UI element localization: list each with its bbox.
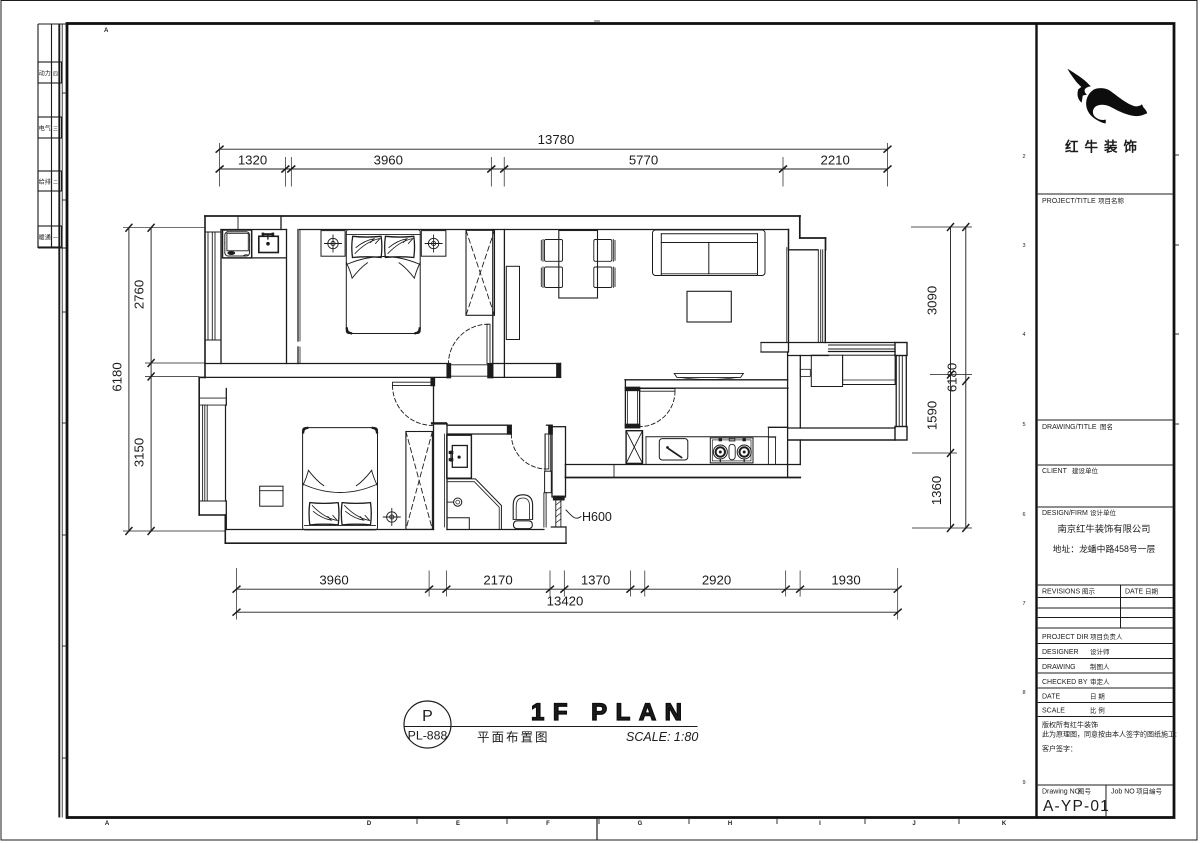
svg-text:1320: 1320 [238,153,267,168]
svg-text:动力: 动力 [39,70,51,78]
svg-text:DRAWING: DRAWING [1042,664,1076,671]
svg-text:电气: 电气 [39,125,51,133]
svg-text:6: 6 [1022,512,1025,518]
svg-text:给排: 给排 [39,178,51,186]
svg-text:二: 二 [53,180,58,186]
svg-text:日期: 日期 [1145,588,1159,596]
svg-text:K: K [1002,821,1007,827]
svg-text:A: A [104,28,109,34]
svg-text:制图人: 制图人 [1090,662,1110,671]
svg-text:地址：龙蟠中路458号一层: 地址：龙蟠中路458号一层 [1053,543,1156,554]
svg-text:SCALE: SCALE [1042,708,1065,715]
svg-text:5: 5 [1022,422,1025,428]
svg-text:Drawing NO: Drawing NO [1042,789,1081,796]
svg-text:8: 8 [1022,690,1025,696]
svg-text:3: 3 [1022,243,1025,249]
svg-text:设计师: 设计师 [1090,647,1110,656]
svg-text:H600: H600 [582,510,612,524]
svg-text:P: P [422,708,433,725]
svg-text:2920: 2920 [702,573,731,588]
svg-text:CLIENT: CLIENT [1042,468,1068,475]
svg-text:H: H [728,821,732,827]
svg-text:DATE: DATE [1042,694,1060,701]
svg-text:1590: 1590 [925,401,940,430]
svg-text:13420: 13420 [547,594,584,609]
svg-text:3150: 3150 [132,438,147,467]
svg-text:E: E [456,821,460,827]
svg-text:A-YP-01: A-YP-01 [1043,798,1110,815]
svg-text:客户签字：: 客户签字： [1042,744,1077,753]
svg-text:此为原理图，同意按由本人签字的图纸施工:: 此为原理图，同意按由本人签字的图纸施工: [1042,730,1177,739]
svg-text:项目负责人: 项目负责人 [1090,632,1123,641]
svg-text:三: 三 [53,127,58,133]
svg-text:一: 一 [53,236,58,242]
svg-text:2760: 2760 [132,280,147,309]
svg-text:DRAWING/TITLE: DRAWING/TITLE [1042,424,1097,431]
svg-text:PL-888: PL-888 [408,729,448,743]
svg-text:1370: 1370 [581,573,610,588]
svg-text:PROJECT DIR: PROJECT DIR [1042,634,1089,641]
svg-text:2: 2 [1022,154,1025,160]
svg-text:7: 7 [1022,601,1025,607]
svg-text:6180: 6180 [945,363,960,392]
svg-text:项目编号: 项目编号 [1136,787,1163,796]
svg-text:9: 9 [1022,780,1025,786]
svg-text:图号: 图号 [1078,788,1092,796]
svg-text:1930: 1930 [831,573,860,588]
svg-text:图名: 图名 [1100,422,1113,431]
svg-text:3960: 3960 [319,573,348,588]
svg-text:PROJECT/TITLE: PROJECT/TITLE [1042,198,1096,205]
svg-text:G: G [638,821,643,827]
svg-text:版权所有红牛装饰: 版权所有红牛装饰 [1042,720,1098,729]
svg-text:3960: 3960 [374,153,403,168]
svg-text:项目名称: 项目名称 [1098,196,1125,205]
svg-text:DATE: DATE [1125,589,1143,596]
svg-text:SCALE: 1:80: SCALE: 1:80 [626,730,698,744]
svg-text:2210: 2210 [821,153,850,168]
svg-text:13780: 13780 [538,132,575,147]
svg-text:暖通: 暖通 [39,234,51,242]
svg-text:南京红牛装饰有限公司: 南京红牛装饰有限公司 [1058,523,1151,534]
svg-text:3090: 3090 [925,286,940,315]
svg-text:审定人: 审定人 [1090,677,1110,686]
svg-text:J: J [912,821,915,827]
svg-text:1360: 1360 [929,476,944,505]
svg-text:A: A [105,821,110,827]
svg-text:DESIGNER: DESIGNER [1042,649,1079,656]
svg-text:2170: 2170 [483,573,512,588]
svg-text:DESIGN/FIRM: DESIGN/FIRM [1042,510,1088,517]
svg-text:平面布置图: 平面布置图 [477,731,550,745]
svg-text:比 例: 比 例 [1090,706,1105,715]
svg-text:日 期: 日 期 [1090,693,1105,701]
svg-text:5770: 5770 [629,153,658,168]
svg-text:建设单位: 建设单位 [1072,466,1099,475]
svg-text:D: D [367,821,372,827]
svg-text:F: F [546,821,550,827]
svg-text:红牛装饰: 红牛装饰 [1065,139,1143,155]
svg-text:1F PLAN: 1F PLAN [531,699,691,726]
svg-text:Job NO: Job NO [1111,789,1135,796]
svg-text:4: 4 [1022,332,1025,338]
svg-text:6180: 6180 [110,362,125,391]
svg-text:REVISIONS: REVISIONS [1042,589,1080,596]
svg-text:CHECKED BY: CHECKED BY [1042,679,1088,686]
svg-text:四: 四 [53,72,58,78]
svg-text:图示: 图示 [1082,588,1096,596]
svg-text:设计单位: 设计单位 [1090,508,1117,517]
